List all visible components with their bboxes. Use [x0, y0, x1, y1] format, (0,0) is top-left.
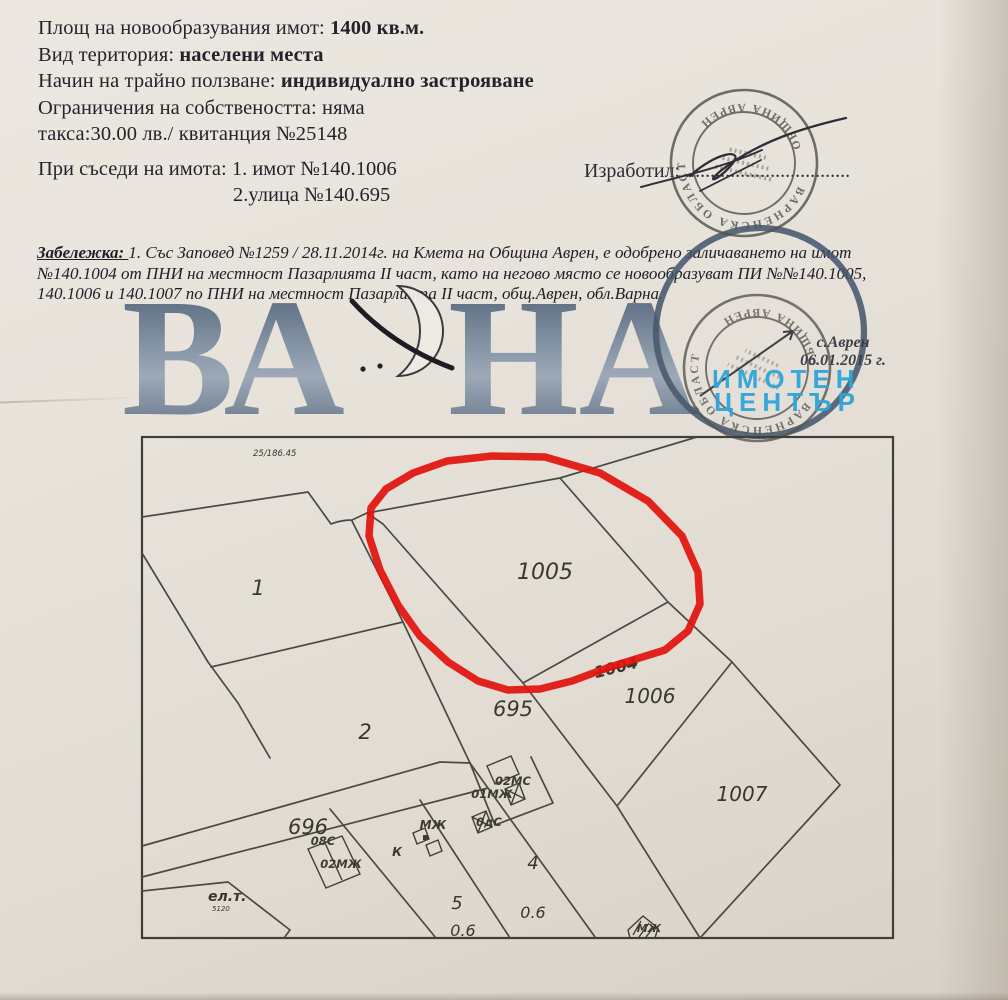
building-label: МЖ: [420, 818, 447, 832]
agency-name-line2: ЦЕНТЪР: [714, 387, 861, 418]
stamp-ring-bottom-text: ОБЩИНА АВРЕН: [696, 90, 812, 153]
parcel-label-1005: 1005: [517, 560, 573, 585]
street-label-695: 695: [493, 697, 533, 721]
municipality-stamp-top: ВАРНЕНСКА ОБЛАСТ ОБЩИНА АВРЕН: [656, 75, 831, 250]
watermark-letters-va: ВА: [122, 265, 345, 451]
parcel-label-1007: 1007: [717, 782, 768, 806]
svg-text:ОБЩИНА АВРЕН: ОБЩИНА АВРЕН: [696, 90, 812, 153]
map-scale-note: 25/186.45: [253, 449, 296, 459]
parcel-label-5: 5: [451, 893, 462, 914]
parcel-label-1: 1: [251, 576, 264, 600]
place-date-block: с.Аврен 06.01.2015 г.: [788, 334, 898, 370]
area-label: 0.6: [450, 921, 475, 940]
building-label: 02МЖ: [320, 857, 362, 871]
cadastral-map: 25/186.45 1 2 1005 1006 1007 1004 695 69…: [142, 437, 893, 940]
power-line-label: ел.т.: [208, 889, 247, 905]
building-label: 08С: [311, 834, 336, 848]
paper-shadow-bottom: [0, 992, 1008, 1000]
parcel-label-2: 2: [358, 720, 371, 744]
power-line-number: 5120: [212, 905, 230, 913]
building-mark: [423, 835, 428, 840]
building-label: 02МС: [495, 774, 531, 788]
area-label: 0.6: [520, 903, 545, 922]
scanned-cadastral-document: Площ на новообразувания имот: 1400 кв.м.…: [0, 0, 1008, 1000]
parcel-label-4: 4: [527, 853, 538, 874]
building-label: К: [392, 845, 403, 859]
building-label: МЖ: [637, 922, 662, 935]
place-label: с.Аврен: [788, 334, 898, 352]
logo-dot: [360, 366, 365, 371]
paper-shadow-right: [938, 0, 1008, 1000]
graphics-layer: ВА НА ВАРНЕНСКА ОБЛАСТ ОБЩИНА АВРЕН: [0, 0, 1008, 1000]
building-label: 0дС: [476, 815, 502, 829]
logo-dot: [377, 363, 382, 368]
building-label: 01МЖ: [471, 787, 513, 801]
date-label: 06.01.2015 г.: [788, 352, 898, 370]
map-labels: 25/186.45 1 2 1005 1006 1007 1004 695 69…: [208, 449, 768, 940]
parcel-label-1006: 1006: [625, 684, 676, 708]
